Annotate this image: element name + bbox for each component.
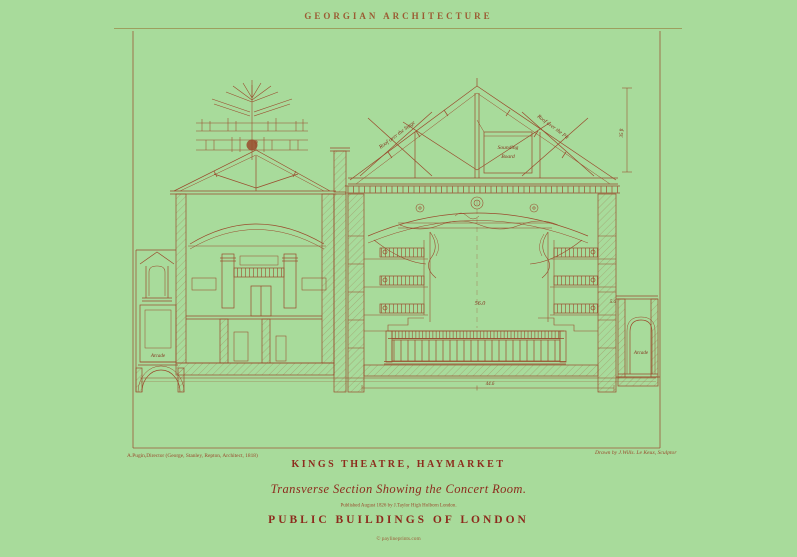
right-arcade-arch [630, 320, 652, 374]
sounding-board-label-1: Sounding [498, 145, 519, 151]
right-arcade-wing [616, 296, 660, 386]
hall-width-dimension-label: 56.0 [475, 301, 486, 307]
left-building-section [170, 141, 336, 375]
left-building-right-wall [322, 194, 334, 363]
credit-architect: A.Pugin,Director (George, Stanley, Repto… [127, 452, 258, 458]
copyright-line: © paylineprints.com [159, 535, 637, 541]
hall-left-wall [348, 194, 364, 392]
left-foundation [176, 363, 334, 375]
credit-engraver: Drawn by J.Wills. Le Keux, Sculptor [594, 449, 676, 455]
left-building-left-wall [176, 194, 186, 363]
main-roof-truss [348, 78, 618, 184]
box-tiers-left [364, 240, 428, 315]
poster: GEORGIAN ARCHITECTURE [0, 0, 797, 557]
hall-foundation [364, 365, 598, 376]
left-basement-arch [142, 370, 180, 392]
left-ceiling-cove [190, 224, 324, 244]
arcade-label-right: Arcade [633, 351, 649, 356]
architectural-section-drawing: Roof over the Stage Roof over the Pit So… [0, 0, 797, 557]
concert-room-section: Roof over the Stage Roof over the Pit So… [140, 78, 656, 392]
roof-height-dimension-label: 35 ft [620, 128, 625, 138]
wing-dimension-label: 5.6 [610, 300, 617, 305]
sounding-board-label-2: Board [501, 154, 515, 160]
hall-right-wall [598, 194, 616, 392]
left-upper-room [192, 254, 326, 316]
arcade-label-left: Arcade [150, 354, 166, 359]
publication-imprint: Published August 1826 by J.Taylor High H… [179, 502, 617, 508]
niche-pediment [140, 252, 174, 264]
series-title: PUBLIC BUILDINGS OF LONDON [0, 514, 797, 526]
plate-border [133, 31, 660, 448]
proscenium-drapery [428, 232, 549, 322]
ground-lines [140, 378, 656, 382]
side-platforms [364, 318, 598, 331]
base-dimension-label: 44.6 [486, 382, 495, 387]
plate-subtitle: Transverse Section Showing the Concert R… [0, 482, 797, 497]
plate-title: KINGS THEATRE, HAYMARKET [0, 459, 797, 470]
eaves-entablature [345, 186, 620, 193]
left-lower-rooms [186, 319, 334, 363]
concert-room-benches [384, 331, 566, 364]
